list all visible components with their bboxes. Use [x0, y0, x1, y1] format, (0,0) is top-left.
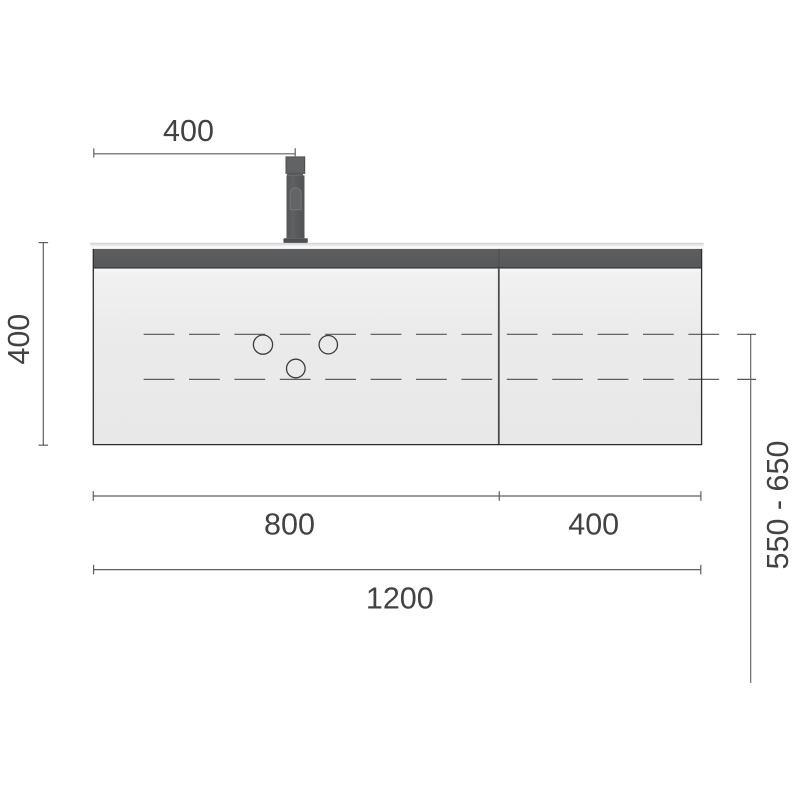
svg-text:400: 400 [568, 508, 619, 542]
svg-text:800: 800 [264, 508, 315, 542]
svg-text:400: 400 [2, 314, 36, 365]
svg-text:1200: 1200 [366, 582, 434, 616]
svg-text:400: 400 [163, 114, 214, 148]
svg-text:550 - 650: 550 - 650 [761, 441, 795, 570]
